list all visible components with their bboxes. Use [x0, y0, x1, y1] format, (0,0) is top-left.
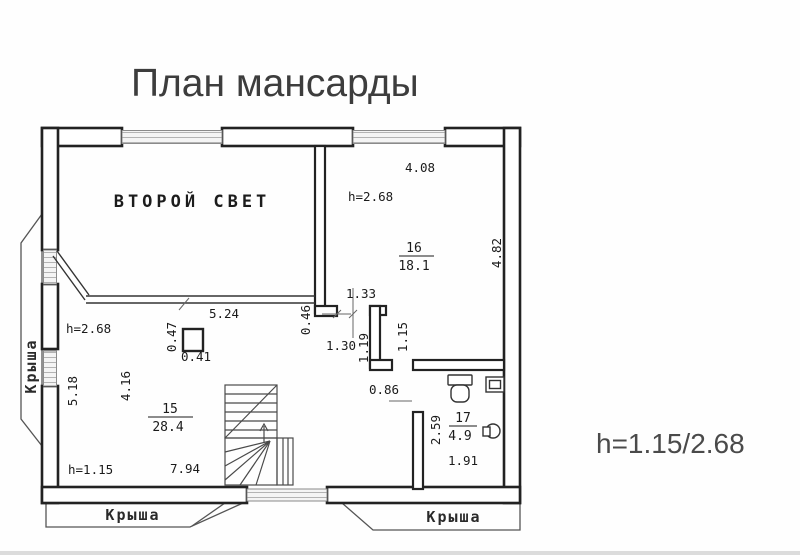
washbasin-tap: [483, 427, 490, 436]
dim-right-depth: 4.82: [489, 238, 504, 268]
room17-number: 17: [455, 411, 471, 426]
wall-left-upper: [42, 128, 58, 250]
dim-h-lower: h=1.15: [68, 462, 113, 477]
window-top-right: [353, 131, 445, 144]
chimney-block: [183, 329, 203, 351]
room15-area: 28.4: [152, 420, 183, 435]
dim-h-room16: h=2.68: [348, 189, 393, 204]
height-note: h=1.15/2.68: [596, 428, 745, 459]
dim-h-room15: h=2.68: [66, 321, 111, 336]
dim-inner-depth: 4.16: [118, 371, 133, 401]
wall-bottom-left: [42, 487, 247, 503]
room16-area: 18.1: [398, 259, 429, 274]
wall-bath-top: [413, 360, 504, 370]
wall-room16-bottom-pier: [370, 306, 380, 368]
dim-jamb: 1.19: [356, 333, 371, 363]
scan-edge-artifact: [0, 551, 800, 555]
roof-label-bottom-left: Крыша: [105, 506, 160, 524]
window-left-upper: [44, 250, 57, 284]
dim-chimney-h: 0.47: [164, 322, 179, 352]
dim-opening-clear: 1.30: [326, 338, 356, 353]
dim-opening-rough: 1.33: [346, 286, 376, 301]
wall-right: [504, 128, 520, 503]
dim-step-depth: 0.46: [298, 305, 313, 335]
roof-label-bottom-right: Крыша: [426, 508, 481, 526]
roof-label-left: Крыша: [22, 338, 40, 393]
wall-left-lower: [42, 386, 58, 503]
window-left-lower: [44, 351, 57, 386]
second-light-label: ВТОРОЙ СВЕТ: [114, 190, 271, 212]
window-top-left: [122, 131, 222, 144]
room17-area: 4.9: [448, 429, 471, 444]
floor-plan-canvas: План мансарды: [0, 0, 800, 555]
wall-bath-top-left: [370, 360, 392, 370]
wall-bath-left: [413, 412, 423, 489]
dim-partition-width: 5.24: [209, 306, 239, 321]
toilet-tank: [448, 375, 472, 385]
wall-left-middle: [42, 284, 58, 349]
room15-number: 15: [162, 402, 178, 417]
wall-room16-left: [315, 146, 325, 313]
vent-duct-inner: [490, 381, 501, 389]
dim-pier: 1.15: [395, 322, 410, 352]
room16-number: 16: [406, 241, 422, 256]
dim-top-width: 4.08: [405, 160, 435, 175]
dim-room15-width: 7.94: [170, 461, 200, 476]
dim-chimney-w: 0.41: [181, 349, 211, 364]
dim-bath-depth: 2.59: [428, 415, 443, 445]
toilet-bowl: [451, 385, 469, 402]
wall-top-middle: [222, 128, 353, 146]
dim-bath-width: 1.91: [448, 453, 478, 468]
window-bottom: [247, 489, 327, 501]
page-title: План мансарды: [131, 62, 419, 105]
dim-left-depth: 5.18: [65, 376, 80, 406]
dim-bath-door: 0.86: [369, 382, 399, 397]
